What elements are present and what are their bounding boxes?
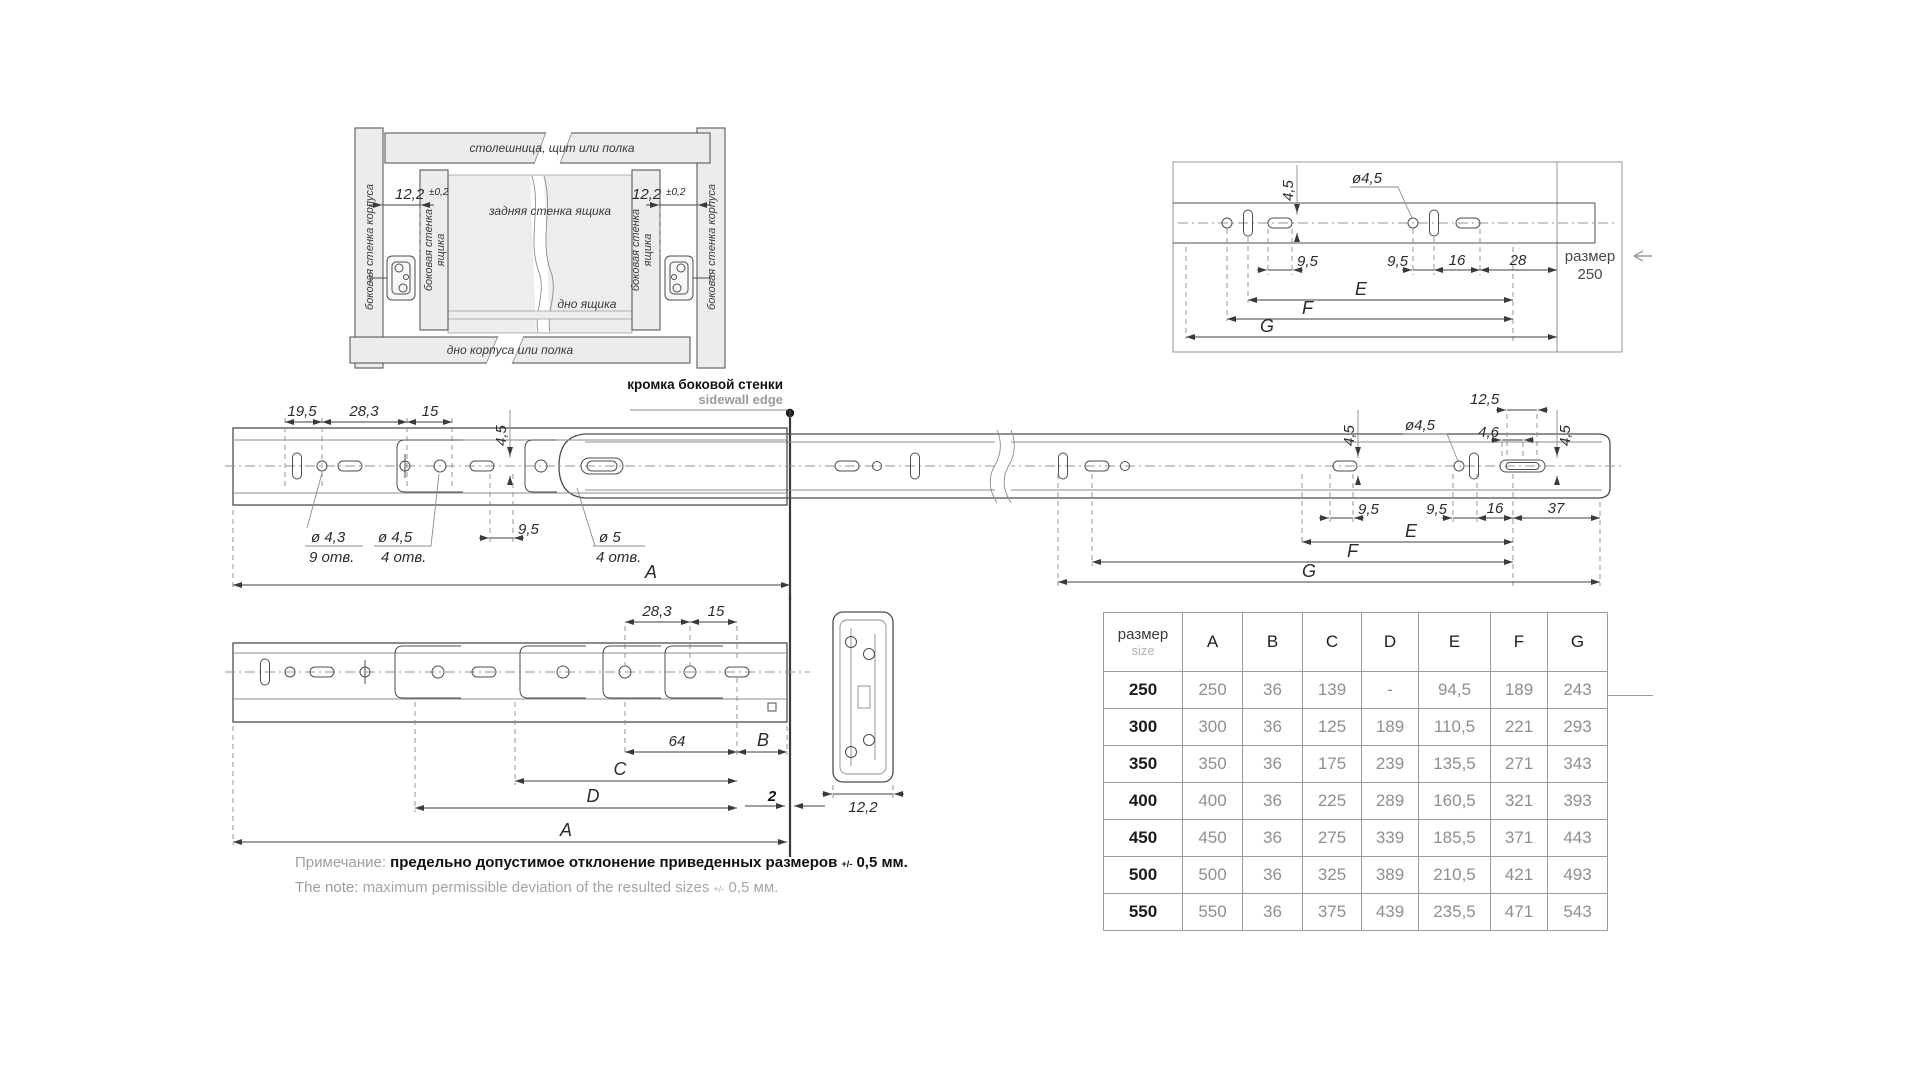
table-header-size: размер size bbox=[1104, 613, 1183, 672]
dim-B: B bbox=[757, 730, 769, 750]
drawer-rail-holes bbox=[261, 646, 777, 711]
table-header-F: F bbox=[1491, 613, 1548, 672]
dim-9-5-small: 9,5 bbox=[518, 521, 540, 538]
cell: 293 bbox=[1548, 709, 1608, 746]
cell: 175 bbox=[1303, 746, 1362, 783]
table-row: 300 300 36 125 189 110,5 221 293 bbox=[1104, 709, 1608, 746]
main-slide-drawing: кромка боковой стенки sidewall edge bbox=[225, 370, 1665, 600]
cell: 289 bbox=[1362, 783, 1419, 820]
technical-drawing-sheet: 12,2 ±0,2 12,2 ±0,2 столешница, щит или … bbox=[0, 0, 1920, 1080]
dim-37: 37 bbox=[1548, 500, 1565, 517]
table-header-D: D bbox=[1362, 613, 1419, 672]
cell: 393 bbox=[1548, 783, 1608, 820]
cell: 389 bbox=[1362, 857, 1419, 894]
cell: 500 bbox=[1183, 857, 1243, 894]
dim-9-5-right-a: 9,5 bbox=[1358, 501, 1380, 518]
table-row: 550 550 36 375 439 235,5 471 543 bbox=[1104, 894, 1608, 931]
dim-A-main: A bbox=[644, 562, 657, 582]
hole1-count: 9 отв. bbox=[309, 549, 354, 566]
hole1-diameter: ø 4,3 bbox=[311, 529, 346, 546]
size-word: размер bbox=[1565, 248, 1615, 265]
row-size: 500 bbox=[1104, 857, 1183, 894]
hole3-diameter: ø 5 bbox=[599, 529, 621, 546]
dim-28: 28 bbox=[1509, 252, 1527, 269]
note-line-ru: Примечание: предельно допустимое отклоне… bbox=[295, 851, 908, 876]
cell: 36 bbox=[1243, 857, 1303, 894]
cell: 94,5 bbox=[1419, 672, 1491, 709]
row-size: 300 bbox=[1104, 709, 1183, 746]
table-row: 350 350 36 175 239 135,5 271 343 bbox=[1104, 746, 1608, 783]
table-row: 250 250 36 139 - 94,5 189 243 bbox=[1104, 672, 1608, 709]
cell: 450 bbox=[1183, 820, 1243, 857]
dim-4-6: 4,6 bbox=[1478, 424, 1500, 441]
row-size: 400 bbox=[1104, 783, 1183, 820]
cell: 36 bbox=[1243, 746, 1303, 783]
cell: 36 bbox=[1243, 894, 1303, 931]
cell: 550 bbox=[1183, 894, 1243, 931]
cell: 300 bbox=[1183, 709, 1243, 746]
dim-15: 15 bbox=[422, 403, 439, 420]
label-bottom-panel: дно корпуса или полка bbox=[447, 343, 574, 357]
cell: 321 bbox=[1491, 783, 1548, 820]
cell: - bbox=[1362, 672, 1419, 709]
detail-rail bbox=[1173, 203, 1618, 243]
dim-offset-right: 12,2 bbox=[632, 186, 662, 203]
label-cabinet-side-left: боковая стенка корпуса bbox=[364, 184, 376, 310]
cell: 160,5 bbox=[1419, 783, 1491, 820]
cell: 375 bbox=[1303, 894, 1362, 931]
label-drawer-side-left-1: боковая стенка bbox=[423, 209, 435, 291]
label-drawer-side-left-2: ящика bbox=[435, 234, 447, 268]
cell: 36 bbox=[1243, 709, 1303, 746]
dim-28-3-bottom: 28,3 bbox=[641, 603, 672, 620]
cell: 421 bbox=[1491, 857, 1548, 894]
table-header-size-ru: размер bbox=[1104, 626, 1182, 643]
cell: 36 bbox=[1243, 820, 1303, 857]
dim-28-3: 28,3 bbox=[348, 403, 379, 420]
dim-G-main: G bbox=[1302, 561, 1316, 581]
cell: 135,5 bbox=[1419, 746, 1491, 783]
drawer-rail-body bbox=[225, 643, 810, 722]
dim-12-2: 12,2 bbox=[848, 799, 878, 816]
note-line-en: The note: maximum permissible deviation … bbox=[295, 876, 908, 901]
cell: 221 bbox=[1491, 709, 1548, 746]
label-drawer-side-right-2: ящика bbox=[642, 234, 654, 268]
dim-offset-right-tol: ±0,2 bbox=[666, 187, 686, 198]
label-cabinet-side-right: боковая стенка корпуса bbox=[706, 184, 718, 310]
dim-4-5-right-a: 4,5 bbox=[1341, 424, 1358, 446]
sidewall-edge-label-ru: кромка боковой стенки bbox=[627, 377, 783, 392]
cell: 189 bbox=[1362, 709, 1419, 746]
table-header-G: G bbox=[1548, 613, 1608, 672]
dim-16-right: 16 bbox=[1487, 500, 1504, 517]
dim-offset-left-tol: ±0,2 bbox=[429, 187, 449, 198]
note-tol-en: 0,5 мм. bbox=[728, 879, 778, 896]
sidewall-edge-label-en: sidewall edge bbox=[698, 392, 783, 407]
detail-dimensions: 4,5 ø4,5 9,5 9,5 16 28 E F G bbox=[1186, 165, 1557, 341]
dim-19-5: 19,5 bbox=[287, 403, 317, 420]
table-header-A: A bbox=[1183, 613, 1243, 672]
dim-9-5-b: 9,5 bbox=[1387, 253, 1409, 270]
dim-A-bottom: A bbox=[559, 820, 572, 840]
row-size: 450 bbox=[1104, 820, 1183, 857]
hole2-diameter: ø 4,5 bbox=[378, 529, 413, 546]
cell: 543 bbox=[1548, 894, 1608, 931]
dim-C: C bbox=[614, 759, 628, 779]
dim-9-5-right-b: 9,5 bbox=[1426, 501, 1448, 518]
label-drawer-side-right-1: боковая стенка bbox=[630, 209, 642, 291]
note-label-en: The note: bbox=[295, 879, 358, 896]
insert-direction-arrow-icon bbox=[1634, 251, 1652, 261]
note-label-ru: Примечание: bbox=[295, 854, 386, 871]
cell: 36 bbox=[1243, 672, 1303, 709]
slide-cross-section: 12,2 bbox=[820, 600, 930, 825]
label-drawer-bottom: дно ящика bbox=[558, 297, 617, 311]
cell: 210,5 bbox=[1419, 857, 1491, 894]
cell: 139 bbox=[1303, 672, 1362, 709]
cell: 110,5 bbox=[1419, 709, 1491, 746]
detail-size-label: размер 250 bbox=[1565, 248, 1615, 283]
dim-G: G bbox=[1260, 316, 1274, 336]
table-row-250-tick bbox=[1607, 695, 1653, 696]
dim-12-5: 12,5 bbox=[1470, 391, 1500, 408]
dim-offset-left: 12,2 bbox=[395, 186, 425, 203]
cell: 325 bbox=[1303, 857, 1362, 894]
hole3-count: 4 отв. bbox=[596, 549, 641, 566]
break-mark bbox=[990, 430, 1014, 503]
dim-F: F bbox=[1302, 298, 1314, 318]
note-text-en: maximum permissible deviation of the res… bbox=[363, 879, 710, 896]
cell: 443 bbox=[1548, 820, 1608, 857]
dim-15-bottom: 15 bbox=[708, 603, 725, 620]
table-header-E: E bbox=[1419, 613, 1491, 672]
table-row: 500 500 36 325 389 210,5 421 493 bbox=[1104, 857, 1608, 894]
table-row: 450 450 36 275 339 185,5 371 443 bbox=[1104, 820, 1608, 857]
note-tol-ru: 0,5 мм. bbox=[856, 854, 907, 871]
row-size: 350 bbox=[1104, 746, 1183, 783]
note-tol-sign-ru: +/- bbox=[842, 859, 853, 869]
cell: 400 bbox=[1183, 783, 1243, 820]
cell: 343 bbox=[1548, 746, 1608, 783]
drawer-parts bbox=[420, 170, 660, 333]
cell: 235,5 bbox=[1419, 894, 1491, 931]
dim-64: 64 bbox=[669, 733, 686, 750]
cross-section-dimension: 12,2 bbox=[822, 785, 904, 816]
table-header-B: B bbox=[1243, 613, 1303, 672]
cell: 350 bbox=[1183, 746, 1243, 783]
table-header-C: C bbox=[1303, 613, 1362, 672]
cell: 239 bbox=[1362, 746, 1419, 783]
cell: 493 bbox=[1548, 857, 1608, 894]
dim-16: 16 bbox=[1449, 252, 1466, 269]
note-text-ru: предельно допустимое отклонение приведен… bbox=[390, 854, 837, 871]
hole2-count: 4 отв. bbox=[381, 549, 426, 566]
note-block: Примечание: предельно допустимое отклоне… bbox=[295, 851, 908, 901]
drawer-rail-dimensions: 28,3 15 64 B C D A 2 bbox=[233, 603, 825, 845]
cell: 36 bbox=[1243, 783, 1303, 820]
dim-4-5-left: 4,5 bbox=[493, 424, 510, 446]
dim-F-main: F bbox=[1347, 541, 1359, 561]
dim-D: D bbox=[587, 786, 600, 806]
cell: 271 bbox=[1491, 746, 1548, 783]
dim-E-main: E bbox=[1405, 521, 1418, 541]
cell: 275 bbox=[1303, 820, 1362, 857]
dim-4-5: 4,5 bbox=[1280, 179, 1297, 201]
cell: 339 bbox=[1362, 820, 1419, 857]
cell: 250 bbox=[1183, 672, 1243, 709]
dim-4-5-right-b: 4,5 bbox=[1557, 424, 1574, 446]
cell: 225 bbox=[1303, 783, 1362, 820]
dim-9-5-a: 9,5 bbox=[1297, 253, 1319, 270]
row-size: 550 bbox=[1104, 894, 1183, 931]
cell: 471 bbox=[1491, 894, 1548, 931]
right-dimensions: 4,5 ø4,5 12,5 4,6 4,5 9,5 9,5 16 37 E bbox=[1058, 391, 1600, 586]
cell: 189 bbox=[1491, 672, 1548, 709]
detail-drawing-250: 4,5 ø4,5 9,5 9,5 16 28 E F G размер 250 bbox=[1160, 125, 1670, 365]
cabinet-installation-diagram: 12,2 ±0,2 12,2 ±0,2 столешница, щит или … bbox=[340, 115, 740, 380]
cell: 125 bbox=[1303, 709, 1362, 746]
label-top-panel: столешница, щит или полка bbox=[469, 141, 634, 155]
cell: 243 bbox=[1548, 672, 1608, 709]
dim-dia-4-5-right: ø4,5 bbox=[1405, 417, 1436, 434]
size-table: размер size A B C D E F G 250 250 36 139… bbox=[1103, 612, 1608, 931]
cell: 371 bbox=[1491, 820, 1548, 857]
dim-dia-4-5: ø4,5 bbox=[1352, 170, 1383, 187]
cell: 185,5 bbox=[1419, 820, 1491, 857]
label-back-wall: задняя стенка ящика bbox=[488, 204, 611, 218]
table-header-row: размер size A B C D E F G bbox=[1104, 613, 1608, 672]
cross-section-profile bbox=[833, 612, 893, 782]
drawer-member-drawing: 28,3 15 64 B C D A 2 bbox=[225, 595, 845, 865]
dim-gap-2: 2 bbox=[767, 788, 777, 805]
table-row: 400 400 36 225 289 160,5 321 393 bbox=[1104, 783, 1608, 820]
row-size: 250 bbox=[1104, 672, 1183, 709]
table-header-size-en: size bbox=[1104, 643, 1182, 658]
size-value: 250 bbox=[1577, 266, 1602, 283]
note-tol-sign-en: +/- bbox=[714, 884, 725, 894]
cell: 439 bbox=[1362, 894, 1419, 931]
dim-E: E bbox=[1355, 279, 1368, 299]
